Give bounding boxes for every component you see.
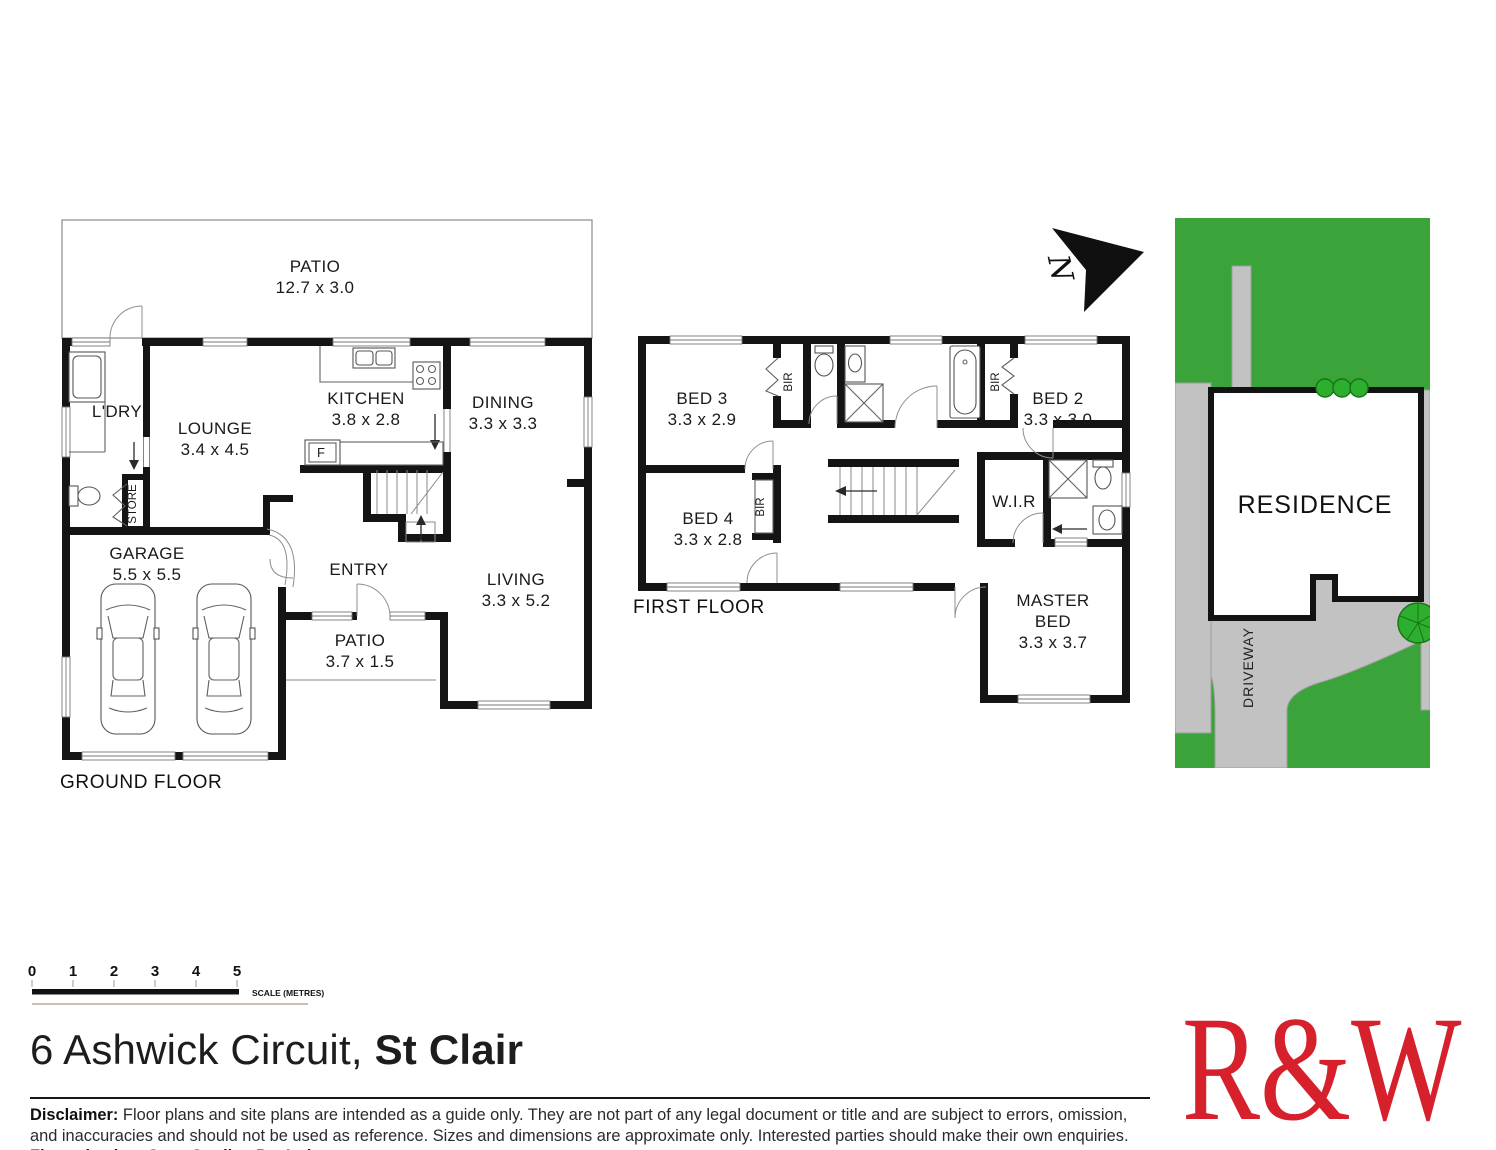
- room-label-living: LIVING: [487, 570, 545, 589]
- bir-label: BIR: [755, 497, 767, 516]
- room-label-patio-top: PATIO: [290, 257, 341, 276]
- room-dims-lounge: 3.4 x 4.5: [181, 440, 250, 459]
- tree-icon: [1398, 603, 1430, 643]
- room-label-wir: W.I.R: [992, 492, 1036, 511]
- room-label-store: STORE: [127, 484, 139, 524]
- vanity-sink-icon: [1093, 506, 1122, 534]
- driveway-label: DRIVEWAY: [1240, 627, 1256, 708]
- fridge-label: F: [317, 445, 325, 460]
- room-label-dining: DINING: [472, 393, 534, 412]
- room-label-ldry: L'DRY: [92, 402, 142, 421]
- room-label-master-1: MASTER: [1016, 591, 1089, 610]
- bush-icons: [1316, 379, 1368, 397]
- disclaimer-body: Floor plans and site plans are intended …: [30, 1106, 1129, 1145]
- room-label-patio-front: PATIO: [335, 631, 386, 650]
- title-divider: [30, 1097, 1150, 1099]
- room-label-master-2: BED: [1035, 612, 1071, 631]
- scale-tick-0: 0: [28, 963, 36, 980]
- scale-tick-5: 5: [233, 963, 241, 980]
- room-label-bed4: BED 4: [682, 509, 733, 528]
- scale-tick-2: 2: [110, 963, 118, 980]
- north-label: N: [1040, 251, 1080, 287]
- staircase-upper: [835, 467, 955, 515]
- bathtub-icon: [950, 346, 980, 418]
- room-label-bed3: BED 3: [676, 389, 727, 408]
- disclaimer-text: Disclaimer: Floor plans and site plans a…: [30, 1105, 1158, 1150]
- shower-icon: [1049, 460, 1087, 498]
- bir-label: BIR: [990, 372, 1002, 391]
- site-plan: RESIDENCE DRIVEWAY: [1175, 218, 1430, 768]
- floorplan-sheet: PATIO 12.7 x 3.0 L'DRY LOUNGE 3.4 x 4.5 …: [0, 0, 1496, 1150]
- brand-logo: R&W: [1182, 994, 1461, 1144]
- page-title: 6 Ashwick Circuit, St Clair: [30, 1026, 523, 1074]
- scale-caption: SCALE (METRES): [252, 988, 324, 998]
- title-address: 6 Ashwick Circuit,: [30, 1026, 363, 1073]
- car-icon: [193, 584, 255, 734]
- ground-floor-plan: PATIO 12.7 x 3.0 L'DRY LOUNGE 3.4 x 4.5 …: [55, 212, 605, 802]
- room-dims-dining: 3.3 x 3.3: [469, 414, 538, 433]
- vanity-sink-icon: [845, 346, 865, 382]
- toilet-icon: [69, 486, 100, 506]
- kitchen-sink-icon: [353, 348, 395, 368]
- room-dims-bed3: 3.3 x 2.9: [668, 410, 737, 429]
- floor-title-ground: GROUND FLOOR: [60, 772, 222, 793]
- room-dims-master: 3.3 x 3.7: [1019, 633, 1088, 652]
- room-dims-kitchen: 3.8 x 2.8: [332, 410, 401, 429]
- scale-tick-1: 1: [69, 963, 77, 980]
- toilet-icon: [1093, 460, 1113, 489]
- first-floor-plan: BED 3 3.3 x 2.9 BED 4 3.3 x 2.8 BED 2 3.…: [625, 330, 1135, 740]
- bir-label: BIR: [783, 372, 795, 391]
- room-label-lounge: LOUNGE: [178, 419, 252, 438]
- cooktop-icon: [413, 362, 440, 389]
- room-dims-bed4: 3.3 x 2.8: [674, 530, 743, 549]
- scale-tick-3: 3: [151, 963, 159, 980]
- room-dims-patio-top: 12.7 x 3.0: [276, 278, 355, 297]
- car-icon: [97, 584, 159, 734]
- scale-bar-rule: [32, 989, 239, 995]
- room-dims-patio-front: 3.7 x 1.5: [326, 652, 395, 671]
- floor-title-first: FIRST FLOOR: [633, 597, 765, 618]
- room-dims-living: 3.3 x 5.2: [482, 591, 551, 610]
- scale-bar: 0 1 2 3 4 5 SCALE (METRES): [18, 960, 348, 1012]
- title-suburb: St Clair: [375, 1026, 524, 1073]
- residence-label: RESIDENCE: [1238, 491, 1393, 519]
- fridge-box: [305, 440, 443, 465]
- room-dims-garage: 5.5 x 5.5: [113, 565, 182, 584]
- disclaimer-label: Disclaimer:: [30, 1106, 118, 1124]
- scale-tick-4: 4: [192, 963, 201, 980]
- toilet-icon: [815, 346, 833, 376]
- staircase: [377, 470, 443, 542]
- room-label-bed2: BED 2: [1032, 389, 1083, 408]
- room-dims-bed2: 3.3 x 3.0: [1024, 410, 1093, 429]
- north-arrow: N: [1030, 222, 1150, 312]
- room-label-garage: GARAGE: [109, 544, 184, 563]
- room-label-entry: ENTRY: [329, 560, 388, 579]
- room-label-kitchen: KITCHEN: [327, 389, 404, 408]
- shower-icon: [845, 384, 883, 422]
